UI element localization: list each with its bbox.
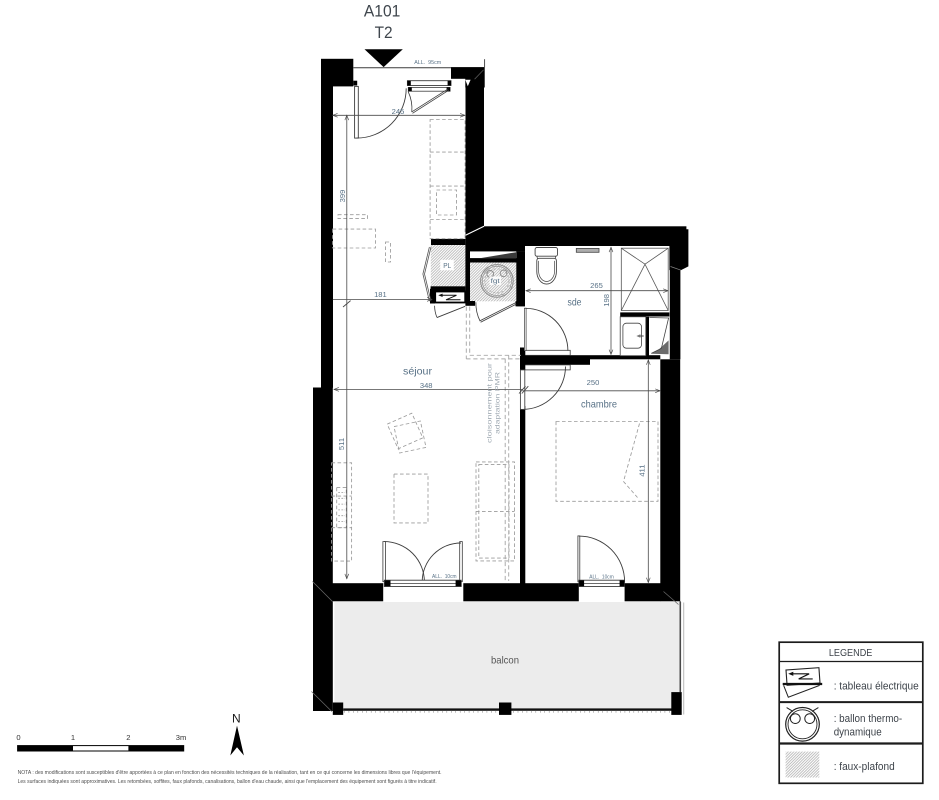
svg-text:A101: A101 (364, 1, 401, 20)
svg-text:198: 198 (602, 294, 611, 307)
svg-text:: faux-plafond: : faux-plafond (834, 761, 895, 773)
svg-text:2: 2 (126, 733, 130, 742)
svg-text:181: 181 (374, 290, 387, 299)
svg-text:: tableau électrique: : tableau électrique (834, 680, 919, 692)
svg-text:265: 265 (590, 281, 603, 290)
svg-text:dynamique: dynamique (834, 727, 882, 739)
svg-text:PL: PL (443, 261, 451, 270)
svg-text:511: 511 (337, 438, 346, 450)
svg-text:adaptation PMR: adaptation PMR (495, 372, 502, 434)
svg-text:ALL. 95cm: ALL. 95cm (414, 60, 441, 66)
svg-text:fgt: fgt (491, 278, 500, 285)
svg-text:LEGENDE: LEGENDE (829, 647, 873, 659)
svg-text:250: 250 (587, 378, 600, 387)
svg-text:3m: 3m (176, 733, 187, 742)
svg-text:399: 399 (338, 190, 347, 203)
svg-text:1: 1 (71, 733, 75, 742)
svg-text:N: N (232, 712, 241, 726)
svg-text:sde: sde (568, 297, 582, 309)
svg-text:chambre: chambre (581, 399, 617, 411)
svg-text:T2: T2 (375, 23, 393, 42)
svg-text:: ballon thermo-: : ballon thermo- (834, 713, 903, 725)
svg-text:balcon: balcon (491, 655, 519, 667)
svg-text:ALL. 10cm: ALL. 10cm (589, 574, 614, 580)
svg-text:NOTA : des modifications sont: NOTA : des modifications sont susceptibl… (18, 770, 442, 776)
svg-text:cloisonnement pour: cloisonnement pour (486, 362, 493, 443)
svg-text:0: 0 (16, 733, 20, 742)
svg-text:Les surfaces indiquées sont ap: Les surfaces indiquées sont approximativ… (18, 779, 437, 785)
svg-text:411: 411 (638, 465, 647, 477)
svg-text:348: 348 (420, 381, 433, 390)
svg-text:ALL. 10cm: ALL. 10cm (432, 574, 457, 580)
svg-text:séjour: séjour (403, 366, 432, 378)
svg-text:245: 245 (392, 107, 405, 116)
